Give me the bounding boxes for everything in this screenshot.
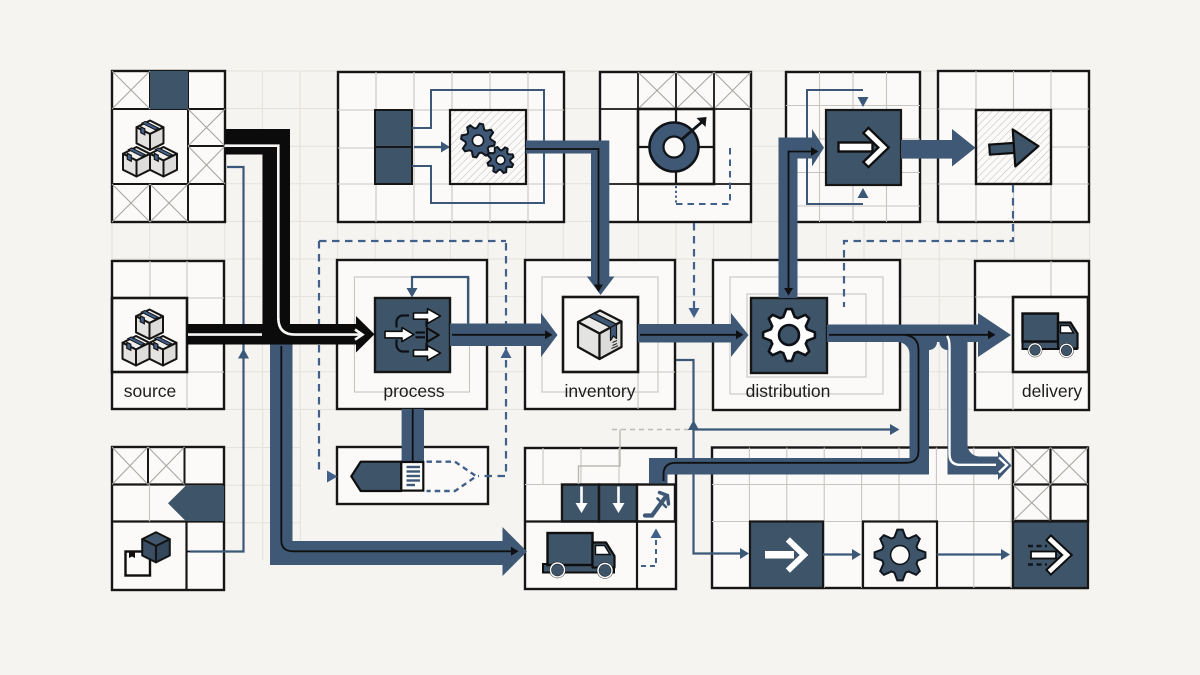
svg-text:process: process <box>383 381 445 401</box>
svg-text:delivery: delivery <box>1022 381 1083 401</box>
svg-text:inventory: inventory <box>564 381 635 401</box>
svg-text:distribution: distribution <box>746 381 831 401</box>
svg-text:source: source <box>124 381 177 401</box>
